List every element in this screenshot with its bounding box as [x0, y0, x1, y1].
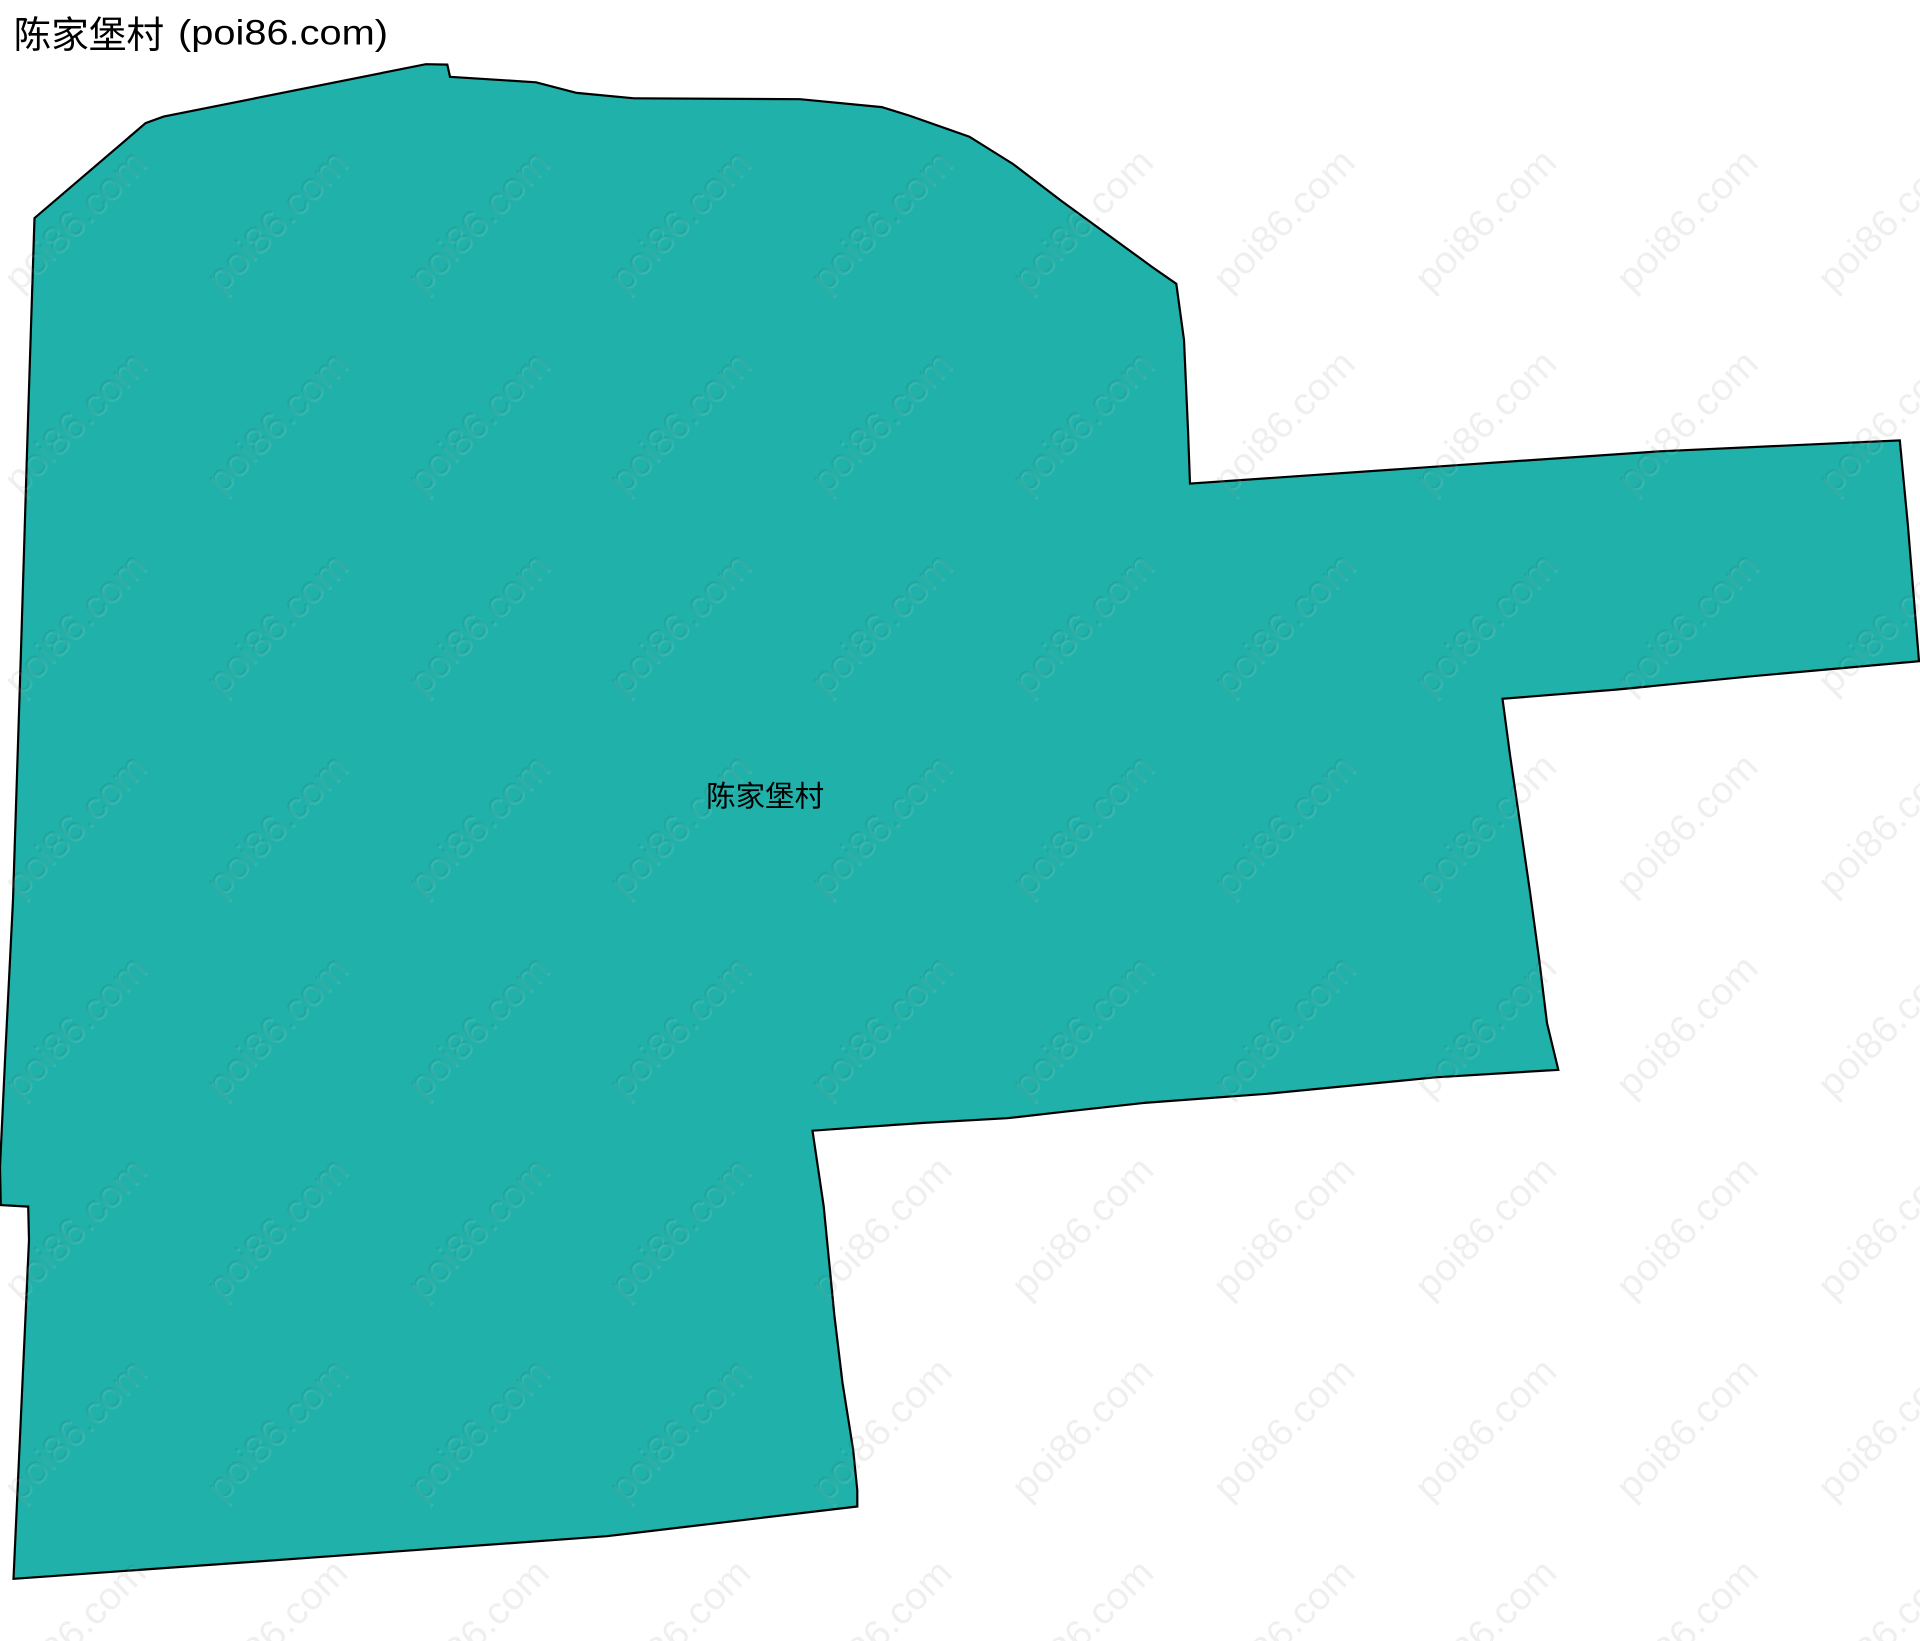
svg-text:(poi86.com): (poi86.com)	[178, 14, 388, 53]
